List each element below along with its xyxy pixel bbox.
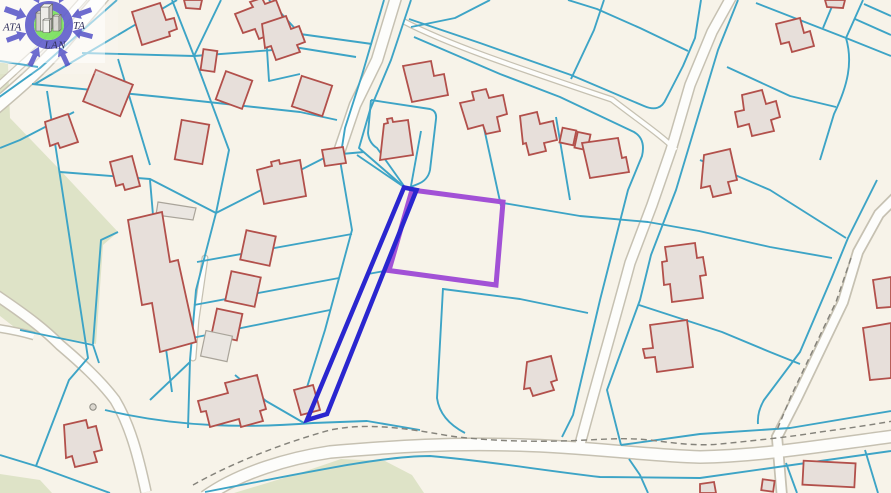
svg-text:TA: TA xyxy=(73,20,85,32)
svg-text:ATA: ATA xyxy=(2,22,22,34)
svg-text:LAN: LAN xyxy=(44,40,67,52)
